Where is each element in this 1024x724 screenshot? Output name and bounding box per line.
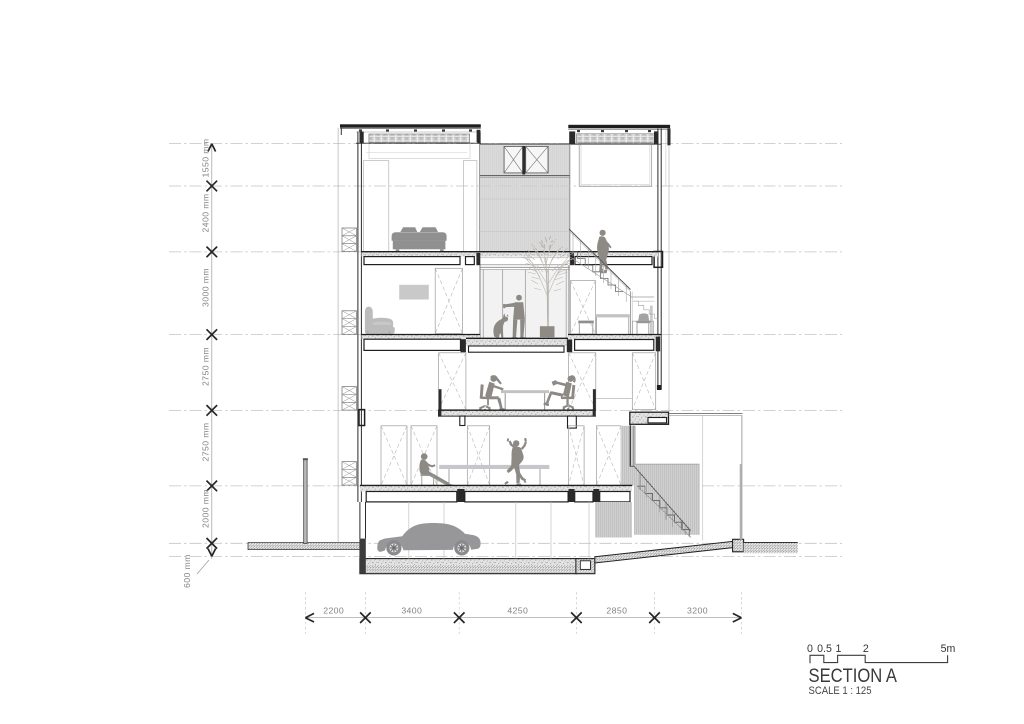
svg-text:2: 2 <box>863 643 869 655</box>
svg-text:0.5: 0.5 <box>817 643 832 655</box>
svg-text:2000 mm: 2000 mm <box>201 489 211 528</box>
svg-text:2850: 2850 <box>606 606 627 616</box>
svg-text:5m: 5m <box>941 643 956 655</box>
svg-text:0: 0 <box>807 643 813 655</box>
svg-text:3000 mm: 3000 mm <box>201 268 211 307</box>
svg-text:1: 1 <box>836 643 842 655</box>
svg-text:1550 mm: 1550 mm <box>201 138 211 177</box>
svg-text:3200: 3200 <box>687 606 708 616</box>
svg-text:2750 mm: 2750 mm <box>201 422 211 461</box>
svg-text:2400 mm: 2400 mm <box>201 193 211 232</box>
svg-text:SCALE 1 : 125: SCALE 1 : 125 <box>809 685 872 697</box>
svg-text:2750 mm: 2750 mm <box>201 347 211 386</box>
svg-text:4250: 4250 <box>507 606 528 616</box>
svg-text:2200: 2200 <box>323 606 344 616</box>
svg-text:600 mm: 600 mm <box>182 554 192 588</box>
svg-text:3400: 3400 <box>401 606 422 616</box>
svg-text:SECTION A: SECTION A <box>809 665 898 687</box>
